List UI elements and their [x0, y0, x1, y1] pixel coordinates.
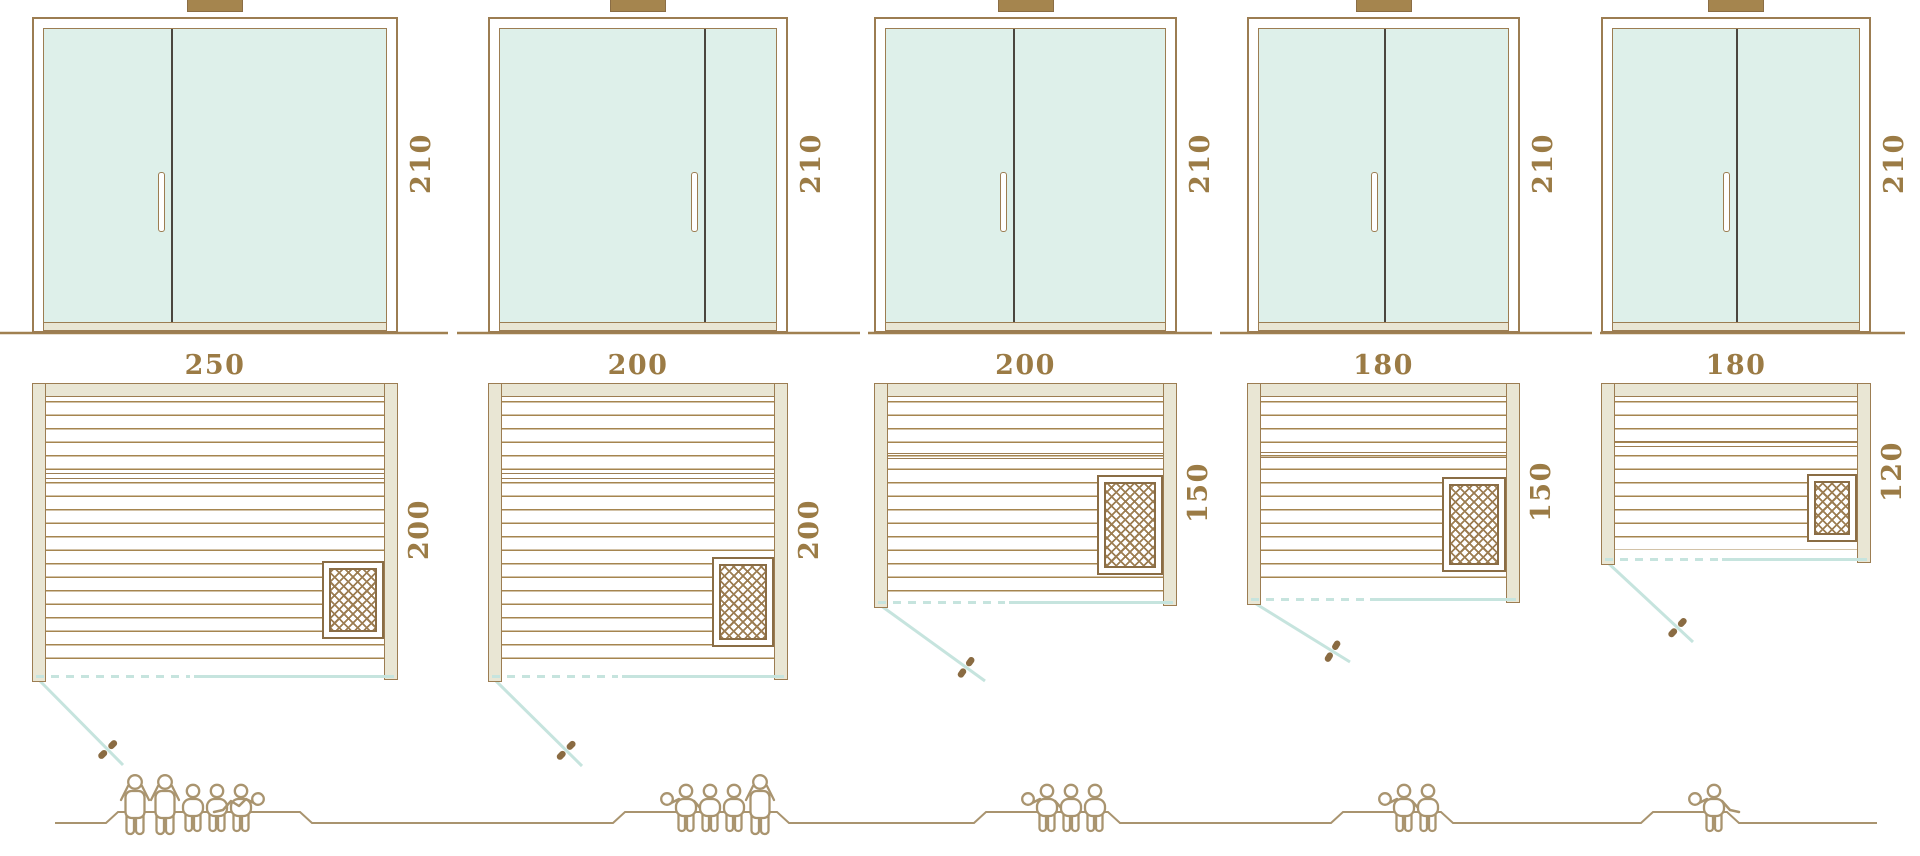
person-standing-icon	[746, 775, 774, 834]
person-sitting-icon	[1418, 785, 1438, 831]
door-swing	[880, 605, 985, 681]
person-sitting-icon	[183, 785, 203, 831]
person-sitting-icon	[676, 785, 696, 831]
capacity-group	[1379, 785, 1438, 831]
capacity-group	[1022, 785, 1105, 831]
door-swing-line	[1607, 562, 1693, 642]
person-sitting-icon	[1394, 785, 1414, 831]
door-swing	[1607, 562, 1693, 642]
capacity-group	[661, 775, 774, 834]
capacity-group	[121, 775, 264, 834]
person-sitting-icon	[231, 785, 251, 831]
person-sitting-icon	[724, 785, 744, 831]
door-swing-line	[38, 679, 123, 765]
sauna-size-diagram: 210 250 200 210 200 200	[0, 0, 1920, 856]
door-swing	[1253, 602, 1350, 663]
door-swing-line	[1253, 602, 1350, 662]
person-sitting-icon	[1704, 785, 1724, 831]
person-sitting-icon	[1085, 785, 1105, 831]
person-sitting-icon	[700, 785, 720, 831]
door-swing-line	[880, 605, 985, 681]
person-sitting-icon	[1037, 785, 1057, 831]
capacity-baseline	[55, 812, 1877, 823]
door-swing	[494, 679, 582, 766]
door-swing	[38, 679, 123, 765]
capacity-group	[1689, 785, 1739, 831]
person-sitting-icon	[1061, 785, 1081, 831]
person-standing-icon	[121, 775, 149, 834]
person-standing-icon	[151, 775, 179, 834]
door-swing-line	[494, 679, 582, 766]
diagram-overlay	[0, 0, 1920, 856]
